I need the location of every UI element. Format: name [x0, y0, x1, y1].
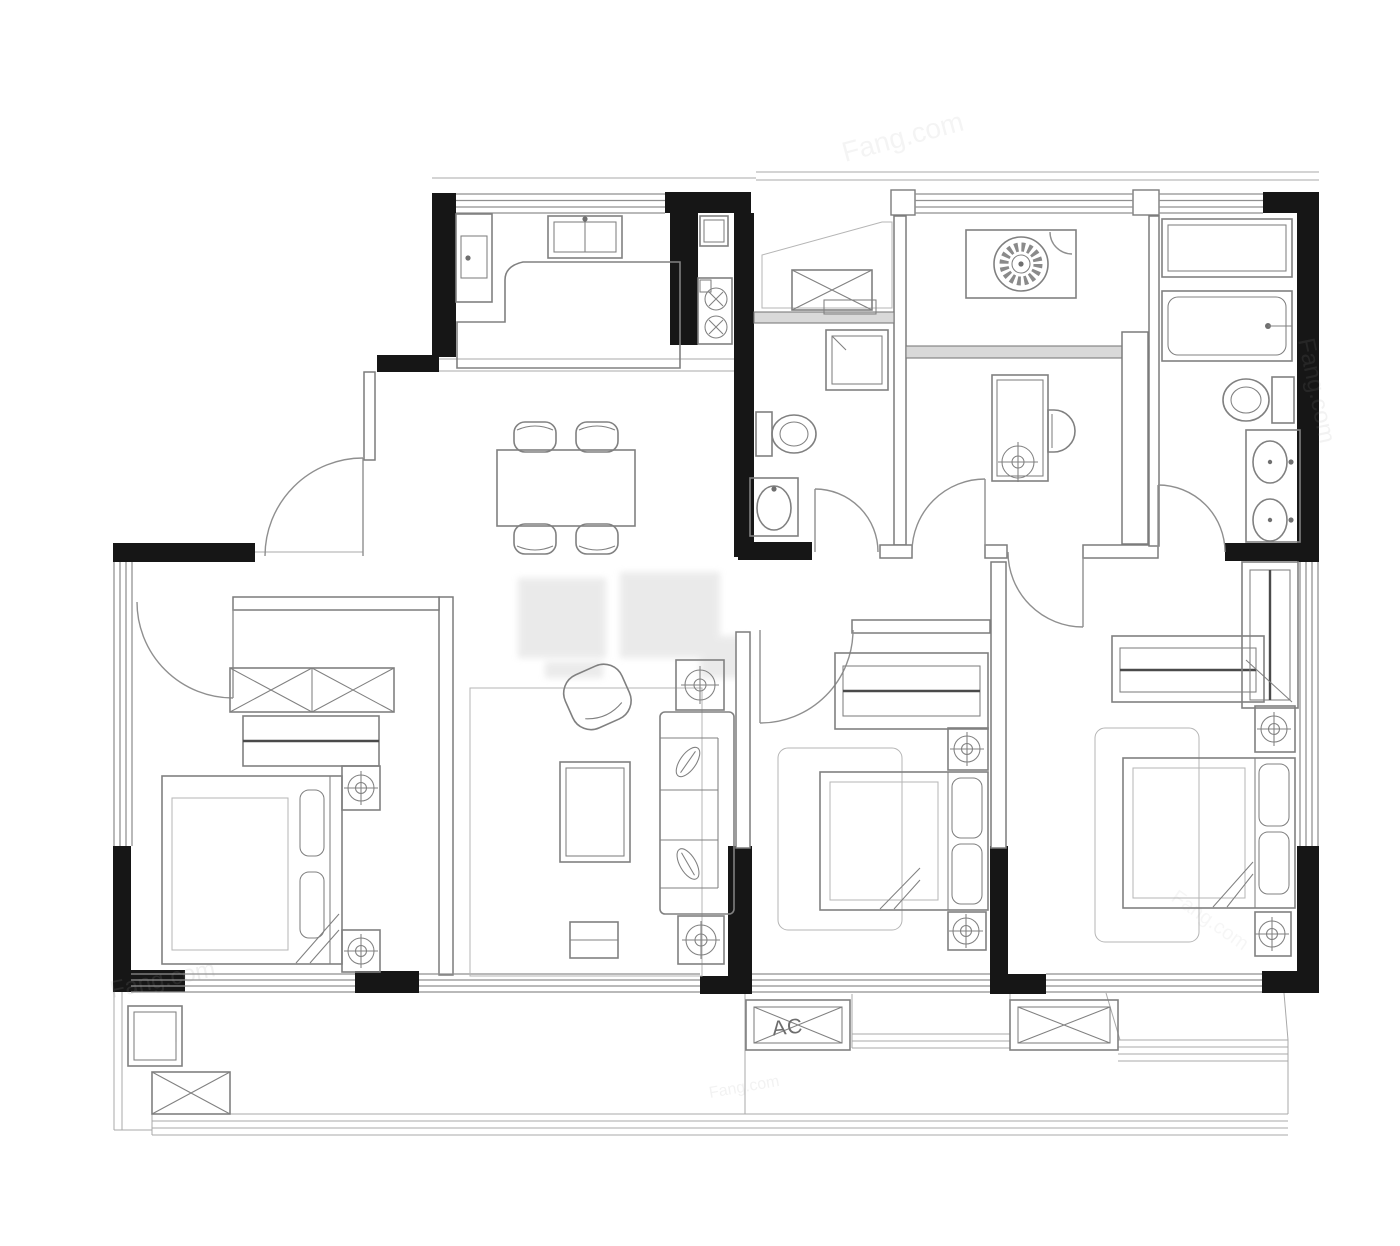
coffee-table — [560, 762, 630, 862]
south-balcony — [128, 1006, 230, 1114]
floor-plan-canvas: AC Fang.com Fang.com Fang.com Fang.com F… — [0, 0, 1400, 1246]
study — [992, 375, 1075, 482]
laundry-top-window — [915, 194, 1133, 213]
entry-door — [265, 458, 363, 556]
laundry-door-swing — [1050, 232, 1072, 254]
nightstand-top — [342, 766, 380, 810]
nightstand-bottom — [948, 912, 986, 950]
faucet — [465, 255, 470, 260]
toilet — [756, 412, 816, 456]
ac-unit-left: AC — [746, 1000, 850, 1050]
master-right-window — [1300, 562, 1318, 846]
nightstand-bottom — [342, 930, 380, 972]
toilet — [1223, 377, 1294, 423]
gas-stove — [698, 278, 732, 344]
shower-enclosure — [826, 330, 888, 390]
left-bedroom — [162, 668, 394, 972]
sofa — [660, 712, 734, 914]
desk-chair — [1048, 410, 1075, 452]
rug — [778, 748, 902, 930]
kitchen-top-window — [456, 194, 665, 213]
desk — [992, 375, 1048, 481]
wardrobe-cabinet — [230, 668, 394, 712]
master-bedroom-door — [1008, 552, 1083, 627]
dining-table — [497, 450, 635, 526]
middle-bedroom-door — [760, 630, 853, 723]
wardrobe-hanging-rail-top — [1112, 636, 1264, 702]
wash-basin — [750, 478, 798, 536]
floor-plan-page: AC Fang.com Fang.com Fang.com Fang.com F… — [0, 0, 1400, 1246]
living-room — [470, 658, 734, 976]
master-bathroom — [1162, 219, 1300, 542]
outer-boundary-lines — [432, 172, 1319, 180]
ac-unit-right — [1010, 1000, 1118, 1050]
double-bed — [162, 776, 342, 964]
wardrobe-hanging-rail-right — [1242, 562, 1298, 708]
dining-area — [497, 422, 635, 554]
left-wall-window — [114, 562, 132, 846]
left-bedroom-door — [137, 602, 233, 698]
rug — [470, 688, 702, 976]
ac-label: AC — [771, 1014, 804, 1040]
second-bathroom-door — [815, 489, 878, 552]
wardrobe-hanging-rail — [835, 653, 988, 729]
watermark-text: Fang.com — [1167, 886, 1252, 955]
shoe-cabinet — [792, 270, 872, 310]
center-watermark-blob — [518, 572, 748, 678]
kitchen-island-counter — [457, 262, 680, 368]
watermark-text: Fang.com — [708, 1073, 781, 1102]
washing-machine — [994, 237, 1048, 291]
kitchen-single-sink — [461, 236, 487, 278]
bathroom-top-window — [1159, 194, 1263, 213]
study-door — [912, 479, 985, 552]
ac-platforms: AC — [746, 1000, 1118, 1050]
bay-window-sills — [852, 993, 1288, 1114]
double-sink-vanity — [1246, 430, 1300, 542]
storage-cabinet — [128, 1006, 182, 1066]
nightstand-bottom — [1255, 912, 1291, 956]
duct-shaft — [1122, 332, 1148, 544]
balcony-cabinet-x — [152, 1072, 230, 1114]
nightstand-top — [1255, 706, 1295, 752]
wardrobe-hanging-rail — [243, 716, 379, 766]
watermark-text: Fang.com — [839, 106, 967, 168]
laundry-balcony — [966, 230, 1076, 298]
master-bathroom-door — [1158, 485, 1225, 552]
side-table-bottom — [678, 916, 724, 964]
nightstand-top — [948, 728, 988, 770]
south-windows — [131, 974, 1262, 992]
second-bathroom — [750, 300, 888, 536]
shower-enclosure — [1162, 219, 1292, 277]
dining-chairs — [514, 422, 618, 554]
double-bed — [820, 772, 988, 910]
double-bed — [1123, 758, 1295, 908]
middle-bedroom — [778, 653, 988, 950]
entry-foyer — [762, 222, 892, 310]
